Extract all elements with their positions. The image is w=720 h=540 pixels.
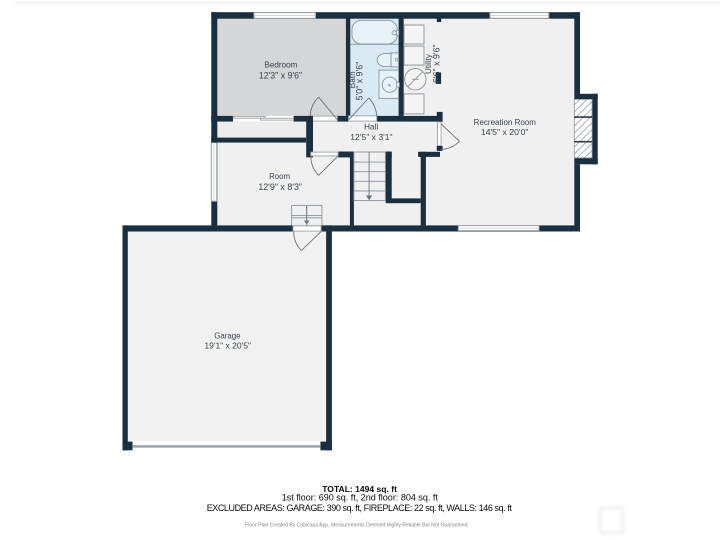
svg-text:EXCLUDED AREAS: GARAGE: 390 sq: EXCLUDED AREAS: GARAGE: 390 sq. ft, FIRE… [207, 503, 513, 513]
svg-text:14'5" x 20'0": 14'5" x 20'0" [481, 127, 529, 137]
svg-text:Floor Plan Created By Cubicasa: Floor Plan Created By Cubicasa App, Meas… [245, 522, 469, 528]
svg-text:Recreation Room: Recreation Room [474, 118, 537, 127]
svg-text:Garage: Garage [214, 331, 241, 340]
svg-text:Hall: Hall [364, 123, 378, 132]
svg-text:19'1" x 20'5": 19'1" x 20'5" [204, 341, 251, 351]
svg-text:5'0" x 9'6": 5'0" x 9'6" [354, 62, 364, 101]
svg-text:Bedroom: Bedroom [264, 60, 297, 69]
svg-text:1st floor: 690 sq. ft, 2nd flo: 1st floor: 690 sq. ft, 2nd floor: 804 sq… [282, 492, 439, 502]
svg-text:Room: Room [269, 172, 290, 181]
svg-text:12'3" x 9'6": 12'3" x 9'6" [259, 70, 302, 80]
svg-text:12'9" x 8'3": 12'9" x 8'3" [258, 182, 302, 192]
svg-text:6'6" x 9'6": 6'6" x 9'6" [431, 44, 441, 83]
svg-text:12'5" x 3'1": 12'5" x 3'1" [350, 132, 392, 142]
